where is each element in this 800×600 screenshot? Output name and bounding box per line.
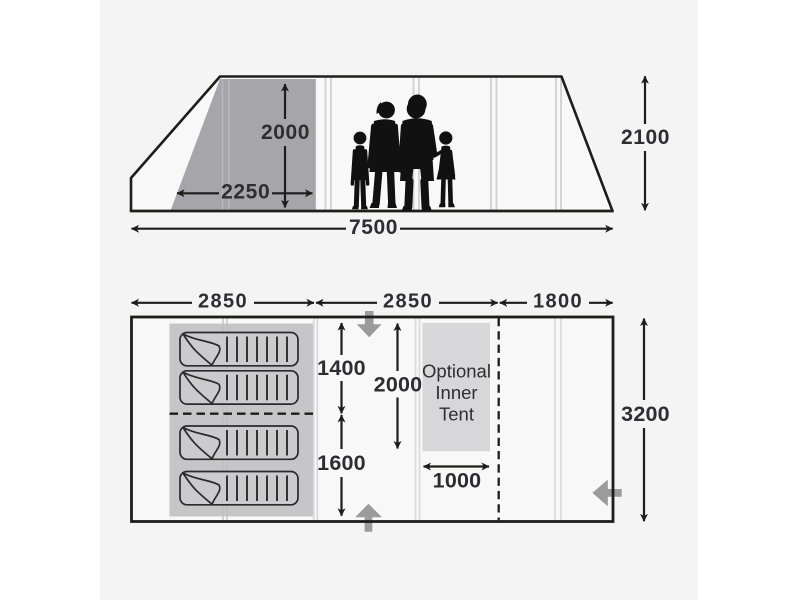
svg-text:Inner: Inner [435,382,477,403]
svg-text:1600: 1600 [317,451,366,475]
svg-text:2850: 2850 [383,291,433,313]
svg-text:2850: 2850 [198,291,248,313]
svg-text:7500: 7500 [349,216,398,239]
svg-text:2250: 2250 [221,181,270,204]
svg-text:1800: 1800 [533,291,583,313]
svg-text:1400: 1400 [317,356,366,380]
svg-text:Optional: Optional [422,361,491,382]
svg-text:2000: 2000 [374,372,423,396]
svg-text:2000: 2000 [261,121,310,144]
svg-text:Tent: Tent [439,404,474,425]
svg-text:2100: 2100 [621,126,670,149]
svg-text:3200: 3200 [621,402,670,426]
svg-text:1000: 1000 [433,469,482,493]
